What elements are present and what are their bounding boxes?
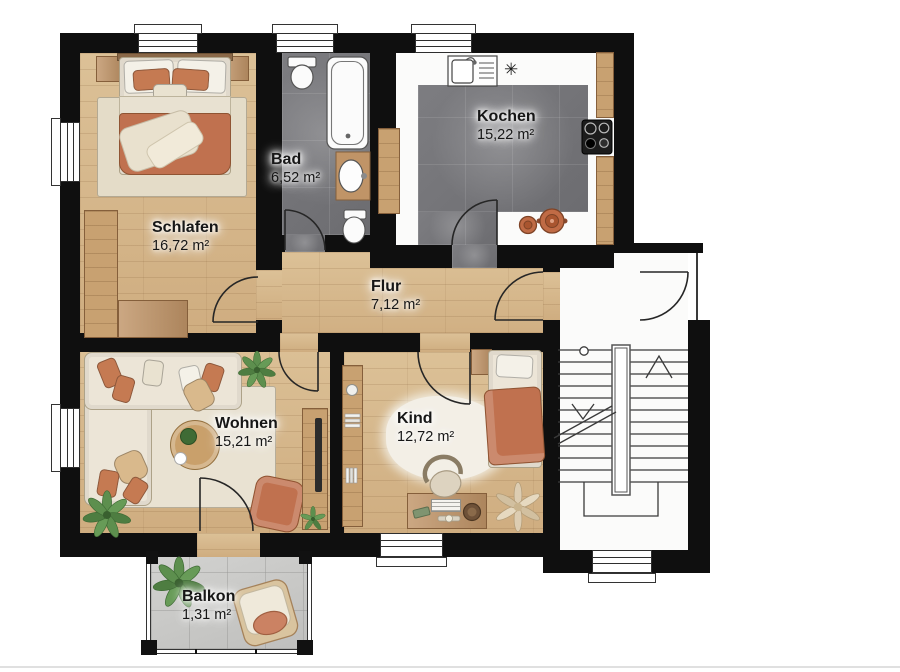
room-area: 16,72 m² [152,237,219,255]
room-area: 6,52 m² [271,169,320,187]
wohnen-doorway [280,333,318,352]
wall-kind-stairwell [543,345,560,533]
room-name: Wohnen [215,415,278,433]
window-kochen-top [415,33,472,53]
table-plant [180,428,197,445]
desk-keyboard [431,499,461,512]
wall-schlafen-flur-post-top [256,252,282,270]
room-area: 1,31 m² [182,606,235,624]
kind-shelf [342,365,363,527]
balkon-rail-tick [195,649,197,654]
wall-flur-stairwell-top [543,252,560,272]
balkon-rail-bottom [146,649,312,654]
balkon-doorway [197,533,260,557]
wall-stairwell-right-thin [696,253,698,320]
sofa-pillow [141,359,164,387]
page-edge-line [0,666,900,668]
kochen-floor-ext [418,212,497,245]
room-name: Kochen [477,108,536,126]
room-label-schlafen: Schlafen 16,72 m² [152,219,219,255]
balkon-post [141,640,157,655]
balkon-rail-tick [255,649,257,654]
room-label-kind: Kind 12,72 m² [397,410,454,446]
room-name: Kind [397,410,454,428]
room-label-balkon: Balkon 1,31 m² [182,588,235,624]
kind-bed-pillow [495,354,533,379]
room-label-wohnen: Wohnen 15,21 m² [215,415,278,451]
kitchen-cabinet-left [378,128,400,214]
schlafen-doorway [256,270,282,320]
kitchen-cabinet-right-top [596,52,614,118]
vent-symbol: ✳ [504,60,518,80]
room-label-bad: Bad 6,52 m² [271,151,320,187]
window-schlafen-left [60,122,80,182]
wardrobe-corner [118,300,188,338]
balkon-post [146,551,158,564]
room-area: 15,21 m² [215,433,278,451]
window-wohnen-left [60,408,80,468]
stairwell-floor [558,253,688,550]
window-bad-top [276,33,334,53]
window-schlafen-top [138,33,198,53]
wall-left [60,33,80,557]
tv-screen [315,418,322,492]
table-tray [174,452,187,465]
wall-stairwell-right [688,320,710,573]
wardrobe [84,210,118,338]
window-sill [588,573,656,583]
floor-plan: ✳ [0,0,900,672]
balkon-post [297,640,313,655]
room-area: 7,12 m² [371,296,420,314]
bad-doorway [285,235,325,252]
room-name: Flur [371,278,420,296]
kochen-doorway [452,245,497,268]
entry-doorway [543,272,560,320]
wall-schlafen-bad [256,53,282,235]
kitchen-cabinet-right-bottom [596,156,614,245]
room-name: Balkon [182,588,235,606]
kind-bed-duvet [483,386,545,466]
wall-mid-b [318,333,420,352]
room-label-flur: Flur 7,12 m² [371,278,420,314]
kind-doorway [420,333,470,352]
kochen-floor [418,85,588,212]
room-area: 12,72 m² [397,428,454,446]
wall-right-kitchen [614,33,634,253]
room-name: Schlafen [152,219,219,237]
room-name: Bad [271,151,320,169]
wall-stairwell-top [614,243,703,253]
balkon-post [299,551,312,564]
room-label-kochen: Kochen 15,22 m² [477,108,536,144]
window-stairwell-bottom [592,550,652,573]
window-kind-bottom [380,533,443,557]
window-sill [376,557,447,567]
bad-floor [282,53,370,235]
room-area: 15,22 m² [477,126,536,144]
wall-flur-stairwell-bottom [543,320,560,345]
